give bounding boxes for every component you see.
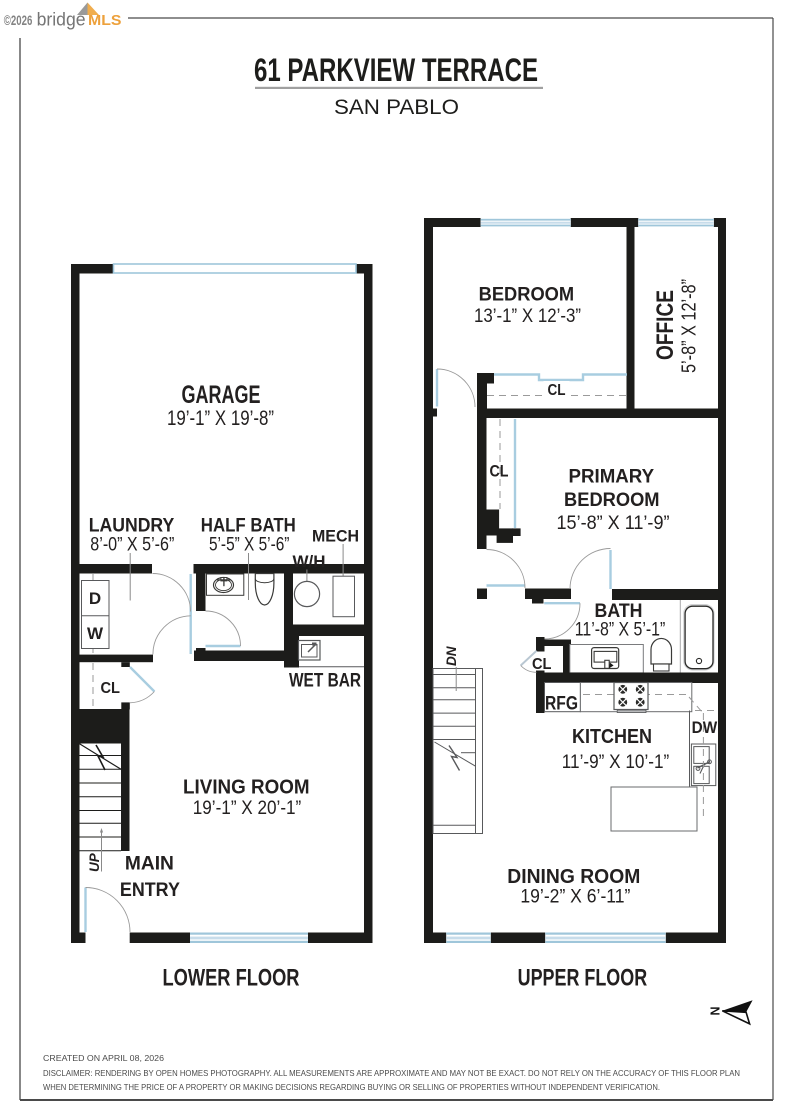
svg-text:HALF BATH: HALF BATH — [201, 515, 296, 537]
svg-text:8’-0” X 5’-6”: 8’-0” X 5’-6” — [90, 535, 174, 556]
svg-text:5’-8” X 12’-8”: 5’-8” X 12’-8” — [679, 279, 701, 373]
svg-text:CL: CL — [532, 656, 552, 673]
svg-text:11’-9” X 10’-1”: 11’-9” X 10’-1” — [562, 752, 670, 773]
svg-text:MAIN: MAIN — [125, 852, 174, 874]
svg-text:MECH: MECH — [312, 527, 359, 546]
svg-text:WET BAR: WET BAR — [289, 670, 361, 692]
svg-text:©2026: ©2026 — [4, 12, 33, 28]
svg-text:DINING ROOM: DINING ROOM — [507, 866, 640, 888]
svg-text:bridge: bridge — [37, 10, 86, 30]
svg-text:15’-8” X 11’-9”: 15’-8” X 11’-9” — [557, 513, 670, 534]
svg-text:13’-1” X 12’-3”: 13’-1” X 12’-3” — [474, 306, 581, 327]
svg-text:RFG: RFG — [545, 694, 578, 715]
svg-text:CL: CL — [100, 680, 120, 697]
svg-text:CL: CL — [490, 462, 509, 481]
svg-text:19’-1” X 19’-8”: 19’-1” X 19’-8” — [167, 407, 274, 430]
svg-text:GARAGE: GARAGE — [182, 381, 261, 409]
svg-text:61 PARKVIEW TERRACE: 61 PARKVIEW TERRACE — [254, 52, 538, 88]
svg-text:W: W — [87, 624, 104, 643]
svg-text:WHEN DETERMINING THE PRICE OF: WHEN DETERMINING THE PRICE OF A PROPERTY… — [43, 1082, 660, 1092]
svg-text:5’-5” X 5’-6”: 5’-5” X 5’-6” — [209, 535, 290, 556]
svg-text:LAUNDRY: LAUNDRY — [89, 515, 175, 537]
svg-text:DISCLAIMER: RENDERING BY OPEN: DISCLAIMER: RENDERING BY OPEN HOMES PHOT… — [43, 1068, 740, 1078]
svg-text:11’-8” X 5’-1”: 11’-8” X 5’-1” — [575, 619, 666, 640]
svg-text:DN: DN — [444, 646, 459, 666]
svg-text:KITCHEN: KITCHEN — [572, 726, 652, 748]
svg-text:19’-2” X 6’-11”: 19’-2” X 6’-11” — [520, 887, 630, 908]
svg-text:UPPER FLOOR: UPPER FLOOR — [518, 965, 648, 992]
svg-text:LOWER FLOOR: LOWER FLOOR — [163, 965, 300, 992]
svg-text:UP: UP — [87, 852, 102, 872]
svg-text:N: N — [708, 1006, 722, 1015]
svg-text:BEDROOM: BEDROOM — [479, 284, 575, 306]
svg-text:D: D — [89, 589, 101, 608]
svg-text:SAN PABLO: SAN PABLO — [334, 95, 459, 119]
svg-text:19’-1” X 20’-1”: 19’-1” X 20’-1” — [193, 798, 302, 819]
svg-text:CL: CL — [548, 382, 566, 399]
svg-text:BEDROOM: BEDROOM — [564, 489, 660, 511]
svg-text:OFFICE: OFFICE — [652, 290, 679, 360]
svg-text:LIVING ROOM: LIVING ROOM — [183, 777, 310, 799]
svg-text:W/H: W/H — [293, 552, 326, 571]
svg-text:PRIMARY: PRIMARY — [569, 465, 655, 487]
svg-text:CREATED ON APRIL 08, 2026: CREATED ON APRIL 08, 2026 — [43, 1053, 164, 1063]
svg-text:DW: DW — [692, 718, 718, 737]
svg-text:ENTRY: ENTRY — [120, 879, 180, 901]
